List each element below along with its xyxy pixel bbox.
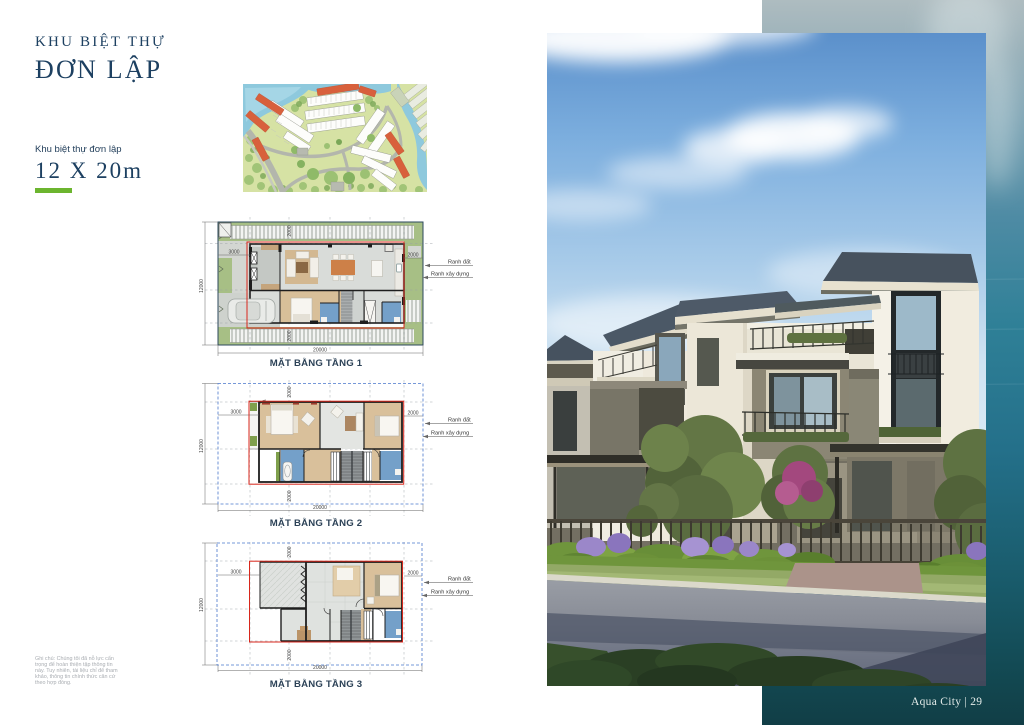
svg-text:12000: 12000 [199, 439, 205, 453]
svg-text:3000: 3000 [230, 570, 241, 576]
svg-text:Ranh đất: Ranh đất [448, 577, 471, 583]
svg-text:2000: 2000 [407, 253, 418, 259]
svg-text:3000: 3000 [230, 410, 241, 416]
svg-text:2000: 2000 [407, 571, 418, 577]
svg-text:Ranh xây dựng: Ranh xây dựng [431, 590, 469, 596]
svg-text:12000: 12000 [199, 598, 205, 612]
svg-text:2000: 2000 [287, 649, 293, 660]
svg-text:20000: 20000 [313, 505, 327, 511]
svg-text:2000: 2000 [287, 330, 293, 341]
svg-text:Ranh xây dựng: Ranh xây dựng [431, 272, 469, 278]
svg-text:2000: 2000 [287, 225, 293, 236]
svg-text:20000: 20000 [313, 665, 327, 671]
svg-text:Ranh đất: Ranh đất [448, 418, 471, 424]
svg-text:MẶT BẰNG TẦNG 3: MẶT BẰNG TẦNG 3 [270, 679, 363, 690]
svg-text:Ranh xây dựng: Ranh xây dựng [431, 431, 469, 437]
svg-text:MẶT BẰNG TẦNG 1: MẶT BẰNG TẦNG 1 [270, 358, 363, 369]
svg-text:2000: 2000 [287, 546, 293, 557]
svg-text:2000: 2000 [287, 386, 293, 397]
svg-text:20000: 20000 [313, 348, 327, 354]
svg-text:12000: 12000 [199, 279, 205, 293]
svg-text:MẶT BẰNG TẦNG 2: MẶT BẰNG TẦNG 2 [270, 518, 363, 529]
svg-text:Ranh đất: Ranh đất [448, 260, 471, 266]
svg-text:2000: 2000 [287, 490, 293, 501]
svg-text:3000: 3000 [228, 250, 239, 256]
svg-text:2000: 2000 [407, 411, 418, 417]
